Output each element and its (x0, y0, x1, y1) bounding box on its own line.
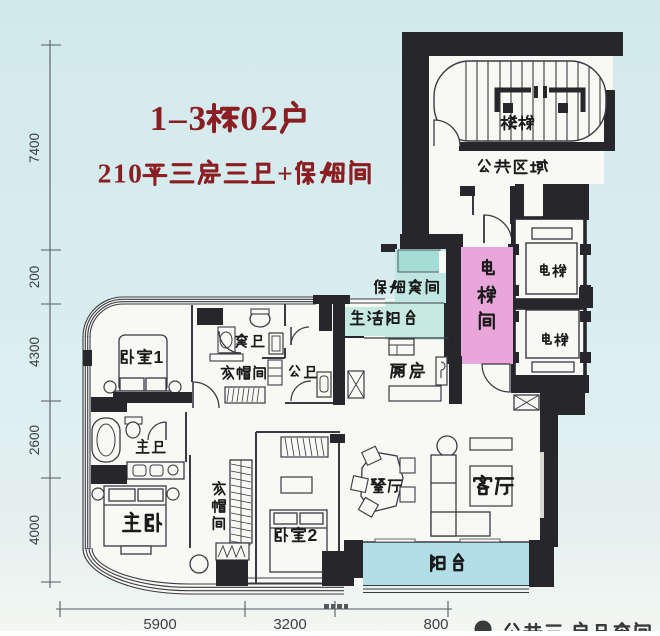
svg-text:2: 2 (308, 525, 318, 545)
svg-text:1–3: 1–3 (150, 99, 206, 138)
svg-text:5900: 5900 (143, 616, 176, 631)
svg-text:1: 1 (154, 347, 164, 367)
svg-text:7400: 7400 (27, 133, 42, 163)
svg-text:210: 210 (98, 157, 142, 188)
svg-text:4000: 4000 (27, 515, 42, 545)
svg-text:800: 800 (423, 616, 448, 631)
svg-text:3200: 3200 (273, 616, 306, 631)
svg-text:4300: 4300 (27, 337, 42, 367)
svg-text:2600: 2600 (27, 425, 42, 455)
svg-text:200: 200 (27, 266, 42, 289)
svg-text:+: + (277, 157, 293, 188)
